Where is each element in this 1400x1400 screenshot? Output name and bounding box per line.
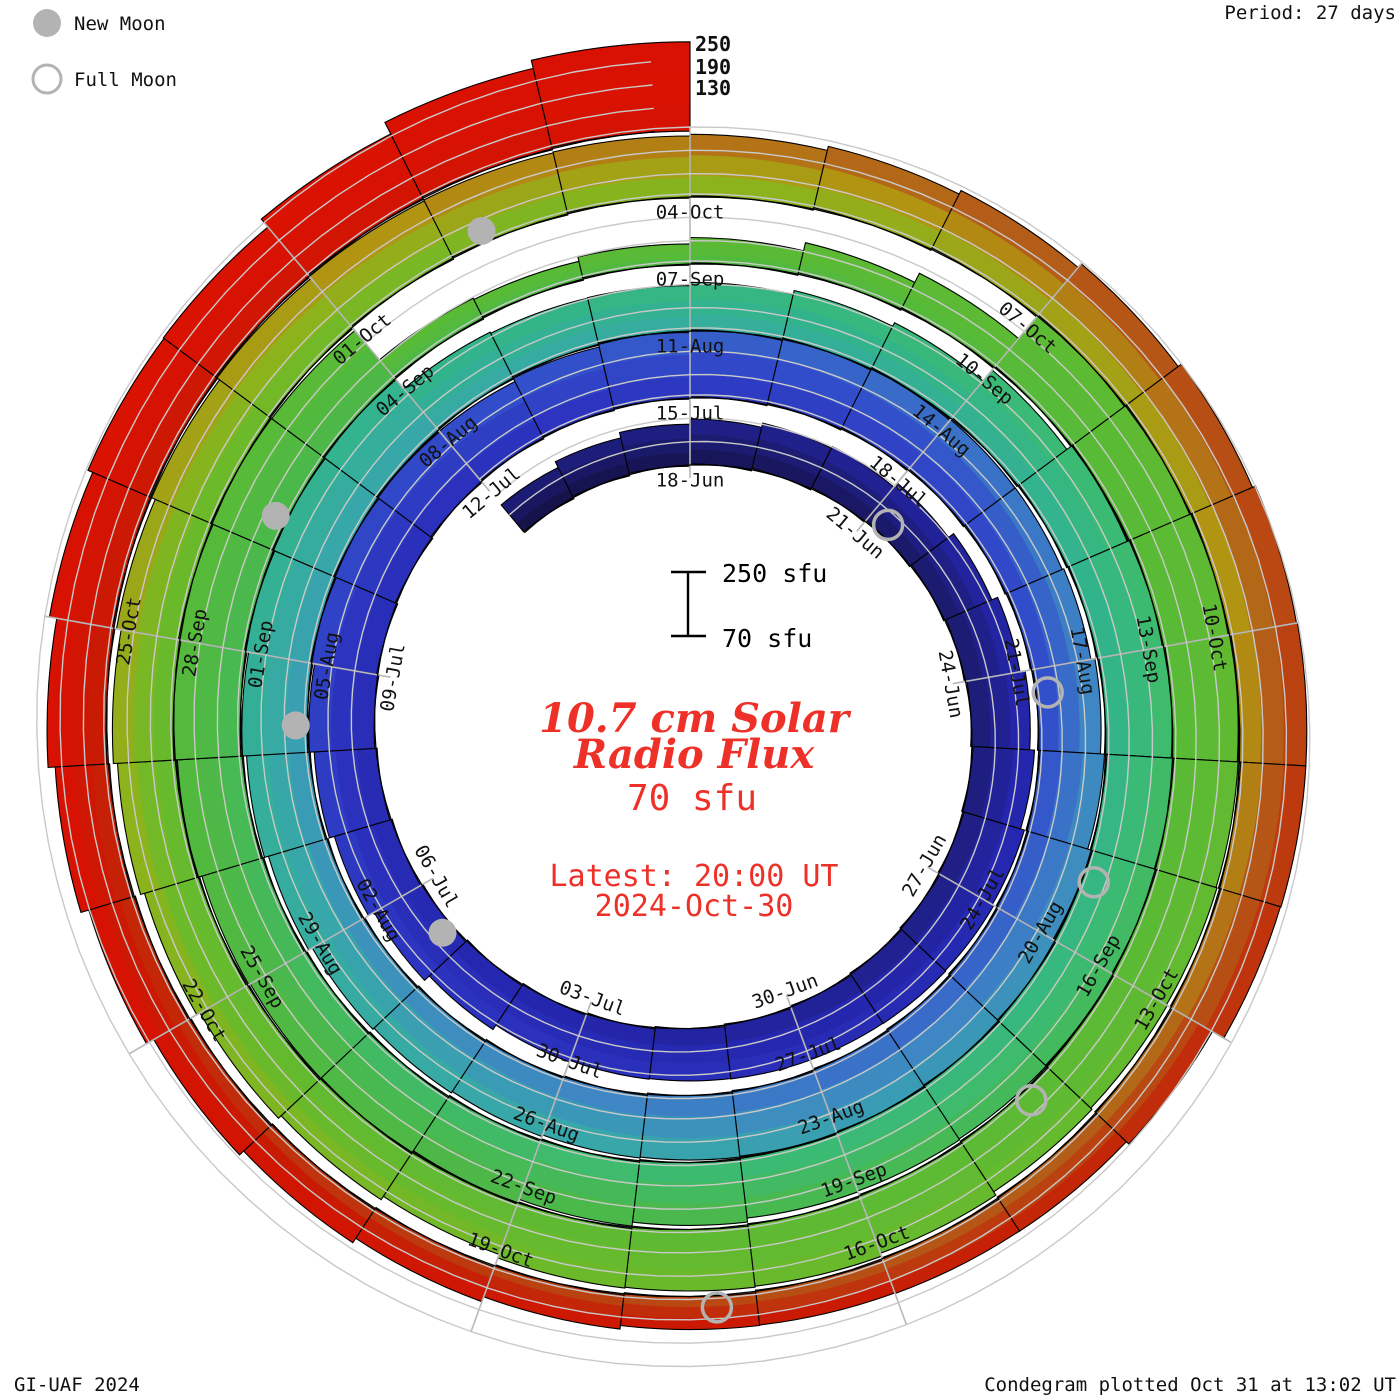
- date-tick-label: 07-Sep: [656, 269, 725, 291]
- scale-130: 130: [695, 76, 731, 100]
- flux-bar-segment: [651, 1043, 728, 1063]
- current-flux-value: 70 sfu: [627, 778, 757, 819]
- flux-bar-segment: [653, 1027, 726, 1047]
- new-moon-marker: [282, 711, 310, 739]
- flux-bar-segment: [633, 1201, 748, 1226]
- scale-250: 250: [695, 32, 731, 56]
- date-tick-label: 04-Oct: [656, 202, 725, 224]
- date-tick-label: 15-Jul: [656, 403, 725, 425]
- date-tick-label: 18-Jun: [656, 470, 725, 492]
- credit-label: GI-UAF 2024: [14, 1374, 140, 1396]
- period-label: Period: 27 days: [1224, 2, 1396, 24]
- condegram-chart: 18-Jun21-Jun24-Jun27-Jun30-Jun03-Jul06-J…: [0, 0, 1400, 1400]
- scalebar-bottom-label: 70 sfu: [722, 624, 812, 653]
- flux-bar-segment: [625, 1266, 755, 1291]
- new-moon-label: New Moon: [74, 13, 166, 35]
- date-tick-label: 11-Aug: [656, 336, 725, 358]
- scalebar-top-label: 250 sfu: [722, 559, 827, 588]
- flux-scalebar: [671, 572, 706, 636]
- condegram-root: 18-Jun21-Jun24-Jun27-Jun30-Jun03-Jul06-J…: [0, 0, 1400, 1400]
- new-moon-icon: [33, 9, 61, 37]
- moon-legend: New Moon Full Moon: [33, 9, 177, 93]
- new-moon-marker: [262, 502, 290, 530]
- radial-scale-labels: 250 190 130: [695, 32, 731, 100]
- plotted-label: Condegram plotted Oct 31 at 13:02 UT: [984, 1374, 1396, 1396]
- flux-bar-segment: [649, 1061, 730, 1081]
- full-moon-label: Full Moon: [74, 69, 177, 91]
- full-moon-icon: [33, 65, 61, 93]
- new-moon-marker: [429, 919, 457, 947]
- chart-title-line2: Radio Flux: [573, 731, 816, 778]
- latest-date: 2024-Oct-30: [595, 889, 794, 924]
- new-moon-marker: [468, 217, 496, 245]
